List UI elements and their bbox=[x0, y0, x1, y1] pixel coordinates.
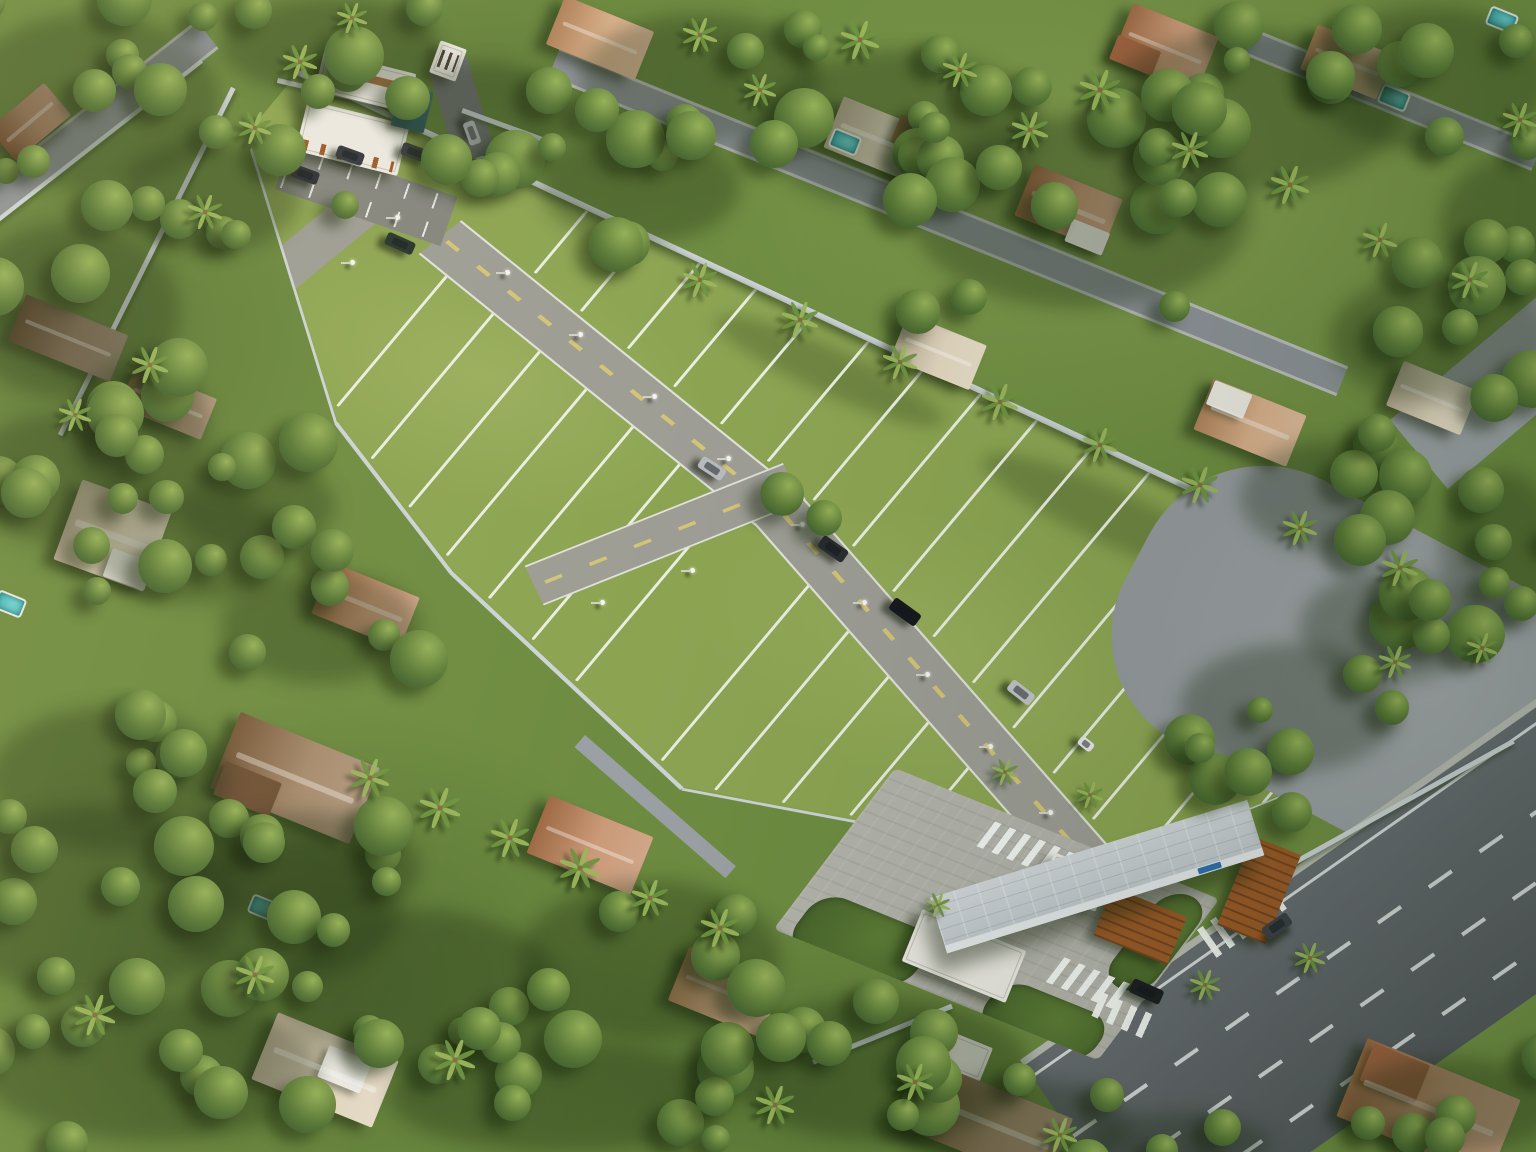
tree bbox=[1343, 655, 1381, 693]
tree bbox=[575, 88, 619, 132]
tree bbox=[1504, 586, 1536, 621]
tree bbox=[372, 867, 401, 896]
tree bbox=[115, 689, 166, 740]
tree bbox=[109, 958, 166, 1015]
car bbox=[888, 597, 922, 627]
tree bbox=[806, 500, 842, 536]
palm-tree bbox=[982, 384, 1018, 420]
tree bbox=[727, 959, 785, 1017]
tree bbox=[279, 1076, 336, 1133]
palm-tree bbox=[59, 399, 91, 431]
tree bbox=[1392, 237, 1443, 288]
palm-tree bbox=[756, 1086, 794, 1124]
tree bbox=[1224, 47, 1251, 74]
tree bbox=[149, 480, 183, 514]
palm-tree bbox=[1271, 166, 1309, 204]
tree bbox=[229, 634, 266, 671]
tree bbox=[51, 244, 110, 303]
tree bbox=[1012, 67, 1052, 107]
palm-tree bbox=[491, 819, 529, 857]
tree bbox=[756, 1013, 805, 1062]
aerial-render-scene bbox=[0, 0, 1536, 1152]
tree bbox=[331, 191, 359, 219]
tree bbox=[1003, 1063, 1036, 1096]
palm-tree bbox=[1080, 70, 1120, 110]
palm-tree bbox=[75, 995, 115, 1035]
car bbox=[817, 535, 850, 564]
tree bbox=[1332, 4, 1382, 54]
tree bbox=[1358, 414, 1396, 452]
palm-tree bbox=[560, 848, 600, 888]
palm-tree bbox=[632, 880, 668, 916]
tree bbox=[134, 63, 187, 116]
tree bbox=[73, 69, 116, 112]
tree bbox=[807, 1021, 852, 1066]
street-lamp bbox=[862, 600, 867, 605]
tree bbox=[1458, 467, 1504, 513]
tree bbox=[37, 957, 75, 995]
tree bbox=[11, 826, 58, 873]
tree bbox=[168, 876, 224, 932]
street-lamp bbox=[578, 332, 583, 337]
tree bbox=[1192, 172, 1247, 227]
tree bbox=[1373, 306, 1423, 356]
tree bbox=[1172, 82, 1227, 137]
palm-tree bbox=[841, 21, 879, 59]
tree-cluster-shadow bbox=[0, 997, 320, 1141]
tree bbox=[1334, 514, 1386, 566]
car bbox=[1006, 678, 1036, 705]
tree bbox=[95, 414, 138, 457]
palm-tree bbox=[435, 1040, 475, 1080]
palm-tree bbox=[283, 45, 317, 79]
tree bbox=[589, 217, 644, 272]
palm-tree bbox=[1467, 633, 1497, 663]
street-lamp bbox=[350, 260, 355, 265]
tree bbox=[138, 539, 192, 593]
tree bbox=[133, 769, 177, 813]
tree bbox=[1499, 24, 1533, 58]
tree bbox=[760, 472, 804, 516]
tree bbox=[853, 979, 898, 1024]
tree bbox=[81, 180, 133, 232]
palm-tree bbox=[236, 956, 274, 994]
tree bbox=[695, 1077, 734, 1116]
palm-tree bbox=[683, 18, 717, 52]
tree bbox=[1090, 1078, 1124, 1112]
palm-tree bbox=[1083, 428, 1117, 462]
tree bbox=[803, 34, 830, 61]
tree bbox=[195, 544, 227, 576]
tree bbox=[1470, 374, 1518, 422]
tree bbox=[1159, 291, 1190, 322]
tree bbox=[1, 468, 51, 518]
tree bbox=[354, 1019, 404, 1069]
tree bbox=[279, 413, 338, 472]
tree bbox=[1159, 179, 1197, 217]
palm-tree bbox=[943, 53, 977, 87]
palm-tree bbox=[1452, 262, 1488, 298]
palm-tree bbox=[782, 302, 818, 338]
tree bbox=[701, 1022, 754, 1075]
tree bbox=[390, 630, 448, 688]
street-lamp bbox=[505, 270, 510, 275]
tree bbox=[1031, 182, 1078, 229]
street-lamp bbox=[600, 600, 605, 605]
palm-tree bbox=[1077, 782, 1103, 808]
tree bbox=[101, 867, 140, 906]
street-lamp bbox=[690, 568, 695, 573]
tree bbox=[1442, 309, 1478, 345]
tree bbox=[16, 1014, 51, 1049]
tree bbox=[83, 577, 111, 605]
palm-tree bbox=[1382, 550, 1418, 586]
street-lamp bbox=[925, 672, 930, 677]
tree bbox=[243, 822, 285, 864]
tree bbox=[1425, 117, 1464, 156]
tree bbox=[1247, 697, 1273, 723]
palm-tree bbox=[351, 759, 389, 797]
tree bbox=[1351, 1106, 1385, 1140]
tree bbox=[1272, 792, 1312, 832]
tree bbox=[1505, 259, 1536, 295]
tree bbox=[1330, 450, 1378, 498]
tree bbox=[1425, 1117, 1465, 1152]
tree bbox=[154, 816, 214, 876]
street-lamp bbox=[652, 394, 657, 399]
tree bbox=[406, 0, 443, 26]
tree bbox=[1475, 524, 1512, 561]
palm-tree bbox=[188, 195, 222, 229]
tree bbox=[188, 2, 217, 31]
tree bbox=[1204, 1109, 1241, 1146]
palm-tree bbox=[1295, 943, 1325, 973]
tree bbox=[421, 134, 472, 185]
tree bbox=[1214, 1, 1263, 50]
car bbox=[1077, 735, 1096, 753]
palm-tree bbox=[1172, 132, 1208, 168]
palm-tree bbox=[132, 347, 168, 383]
tree bbox=[951, 279, 987, 315]
street-lamp bbox=[395, 215, 400, 220]
tree bbox=[194, 1066, 248, 1120]
tree bbox=[272, 505, 316, 549]
tree bbox=[0, 0, 6, 21]
street-lamp bbox=[1048, 810, 1053, 815]
palm-tree bbox=[1012, 112, 1048, 148]
tree bbox=[896, 289, 941, 334]
tree bbox=[354, 796, 414, 856]
palm-tree bbox=[897, 1064, 933, 1100]
tree bbox=[538, 133, 566, 161]
palm-tree bbox=[1363, 223, 1397, 257]
palm-tree bbox=[337, 3, 367, 33]
palm-tree bbox=[744, 74, 776, 106]
roof-ridge bbox=[1210, 404, 1290, 440]
tree bbox=[199, 115, 233, 149]
palm-tree bbox=[701, 909, 739, 947]
tree bbox=[267, 890, 321, 944]
tree bbox=[208, 453, 235, 480]
tree bbox=[159, 1029, 202, 1072]
palm-tree bbox=[239, 112, 271, 144]
tree bbox=[1399, 23, 1454, 78]
palm-tree bbox=[926, 893, 950, 917]
tree bbox=[1185, 733, 1215, 763]
street-lamp bbox=[726, 456, 731, 461]
tree bbox=[544, 1010, 602, 1068]
palm-tree bbox=[1503, 103, 1536, 137]
tree bbox=[324, 26, 383, 85]
palm-tree bbox=[1043, 1118, 1077, 1152]
tree bbox=[311, 567, 349, 605]
tree bbox=[160, 729, 208, 777]
street-lamp bbox=[988, 744, 993, 749]
tree bbox=[107, 483, 138, 514]
structures-and-vegetation bbox=[0, 0, 1536, 1152]
palm-tree bbox=[1379, 646, 1411, 678]
tree bbox=[702, 1125, 730, 1152]
tree bbox=[526, 67, 572, 113]
tree bbox=[221, 220, 250, 249]
tree bbox=[317, 913, 351, 947]
tree bbox=[976, 145, 1021, 190]
palm-tree bbox=[992, 759, 1018, 785]
tree bbox=[385, 76, 430, 121]
tree bbox=[727, 33, 763, 69]
tree bbox=[494, 1085, 531, 1122]
palm-tree bbox=[1182, 467, 1218, 503]
tree bbox=[311, 529, 354, 572]
tree bbox=[73, 527, 110, 564]
tree bbox=[17, 145, 50, 178]
palm-tree bbox=[1283, 511, 1317, 545]
palm-tree bbox=[420, 788, 460, 828]
tree bbox=[1306, 51, 1354, 99]
tree bbox=[1224, 748, 1272, 796]
tree bbox=[130, 186, 165, 221]
tree bbox=[887, 1099, 919, 1131]
palm-tree bbox=[883, 345, 917, 379]
tree bbox=[1267, 728, 1314, 775]
tree bbox=[1479, 567, 1510, 598]
palm-tree bbox=[1190, 970, 1220, 1000]
street-lamp bbox=[800, 522, 805, 527]
swimming-pool bbox=[0, 589, 28, 619]
tree bbox=[1139, 128, 1177, 166]
palm-tree bbox=[683, 263, 717, 297]
tree bbox=[666, 111, 715, 160]
tree bbox=[301, 74, 335, 108]
